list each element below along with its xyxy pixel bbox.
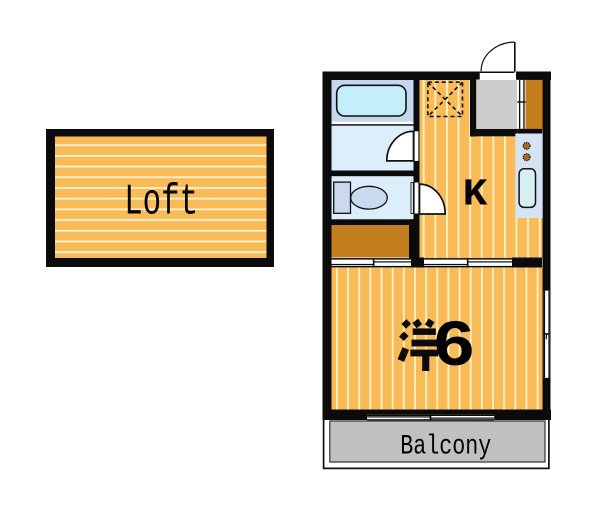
svg-text:K: K bbox=[463, 173, 488, 216]
svg-text:6: 6 bbox=[432, 310, 476, 385]
svg-text:Loft: Loft bbox=[124, 177, 198, 227]
svg-text:Balcony: Balcony bbox=[400, 430, 491, 462]
